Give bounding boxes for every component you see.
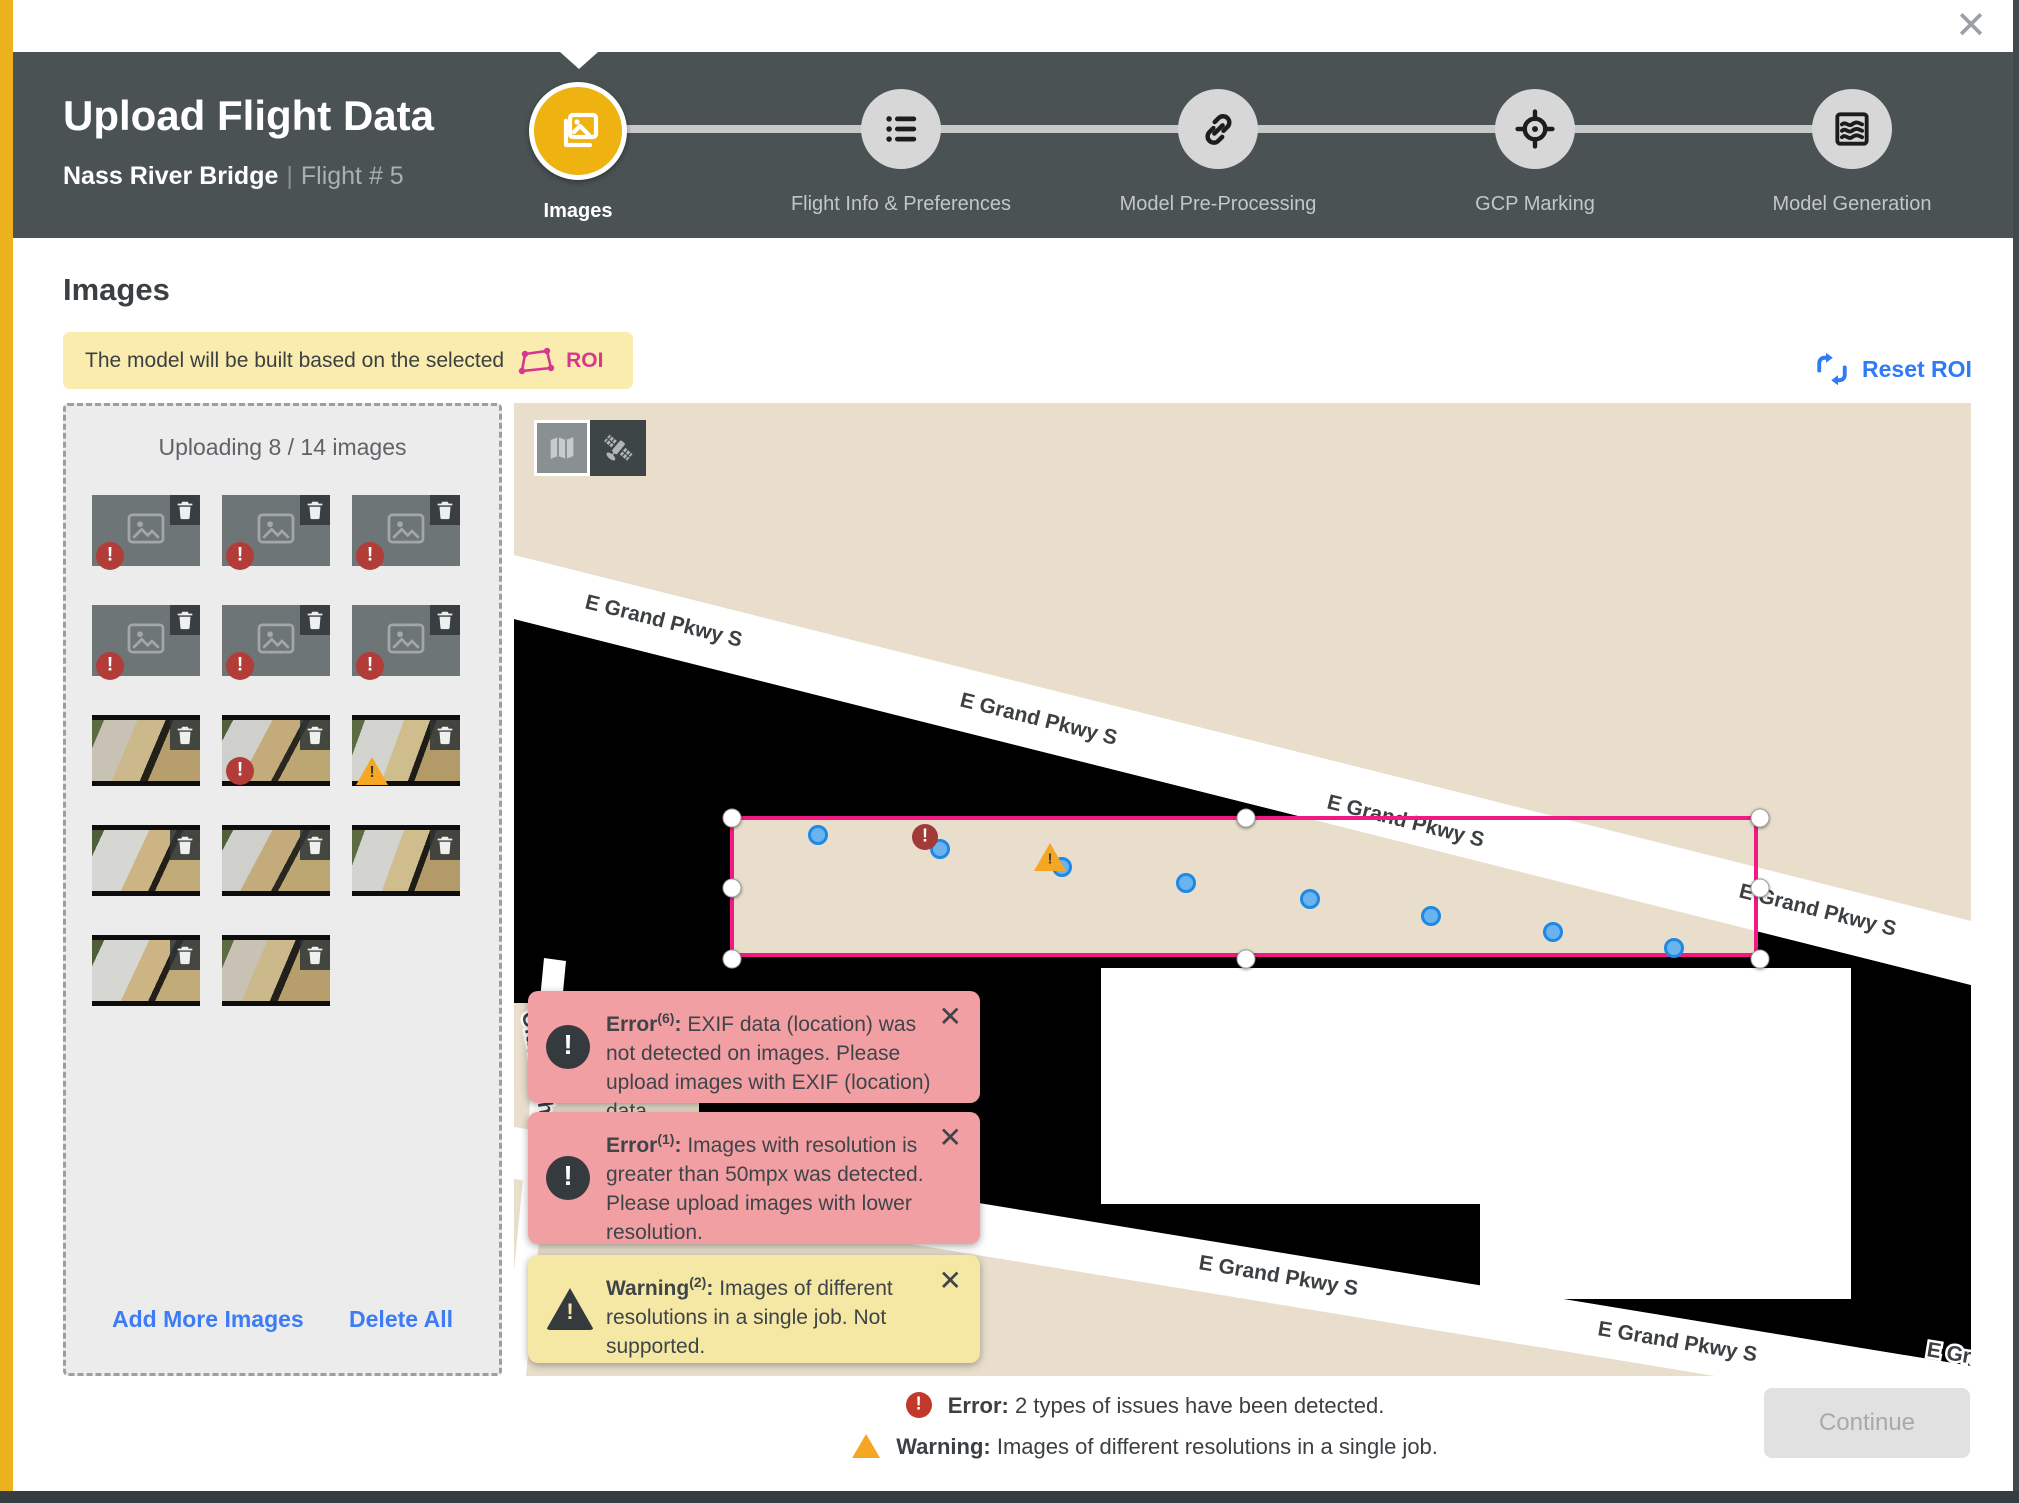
map-error-badge[interactable] bbox=[912, 824, 938, 850]
roi-resize-handle[interactable] bbox=[1237, 950, 1256, 969]
roi-resize-handle[interactable] bbox=[1751, 950, 1770, 969]
roi-resize-handle[interactable] bbox=[1751, 879, 1770, 898]
delete-image-button[interactable] bbox=[170, 495, 200, 525]
roi-resize-handle[interactable] bbox=[1751, 809, 1770, 828]
map-icon bbox=[546, 432, 578, 464]
step-model-generation[interactable]: Model Generation bbox=[1702, 52, 2002, 216]
trash-icon bbox=[304, 499, 326, 521]
list-icon bbox=[879, 107, 923, 151]
step-flight-info[interactable]: Flight Info & Preferences bbox=[751, 52, 1051, 216]
building-footprint bbox=[1101, 968, 1851, 1204]
close-icon[interactable]: ✕ bbox=[933, 999, 968, 1034]
toast-count: (6) bbox=[657, 1010, 674, 1026]
toast-colon: : bbox=[674, 1134, 681, 1157]
step-gcp-marking[interactable]: GCP Marking bbox=[1385, 52, 1685, 216]
image-placeholder-icon bbox=[125, 511, 167, 550]
images-section-heading: Images bbox=[63, 272, 170, 308]
map-view-toggle bbox=[534, 420, 646, 476]
footer-error-summary: Error: 2 types of issues have been detec… bbox=[640, 1392, 1650, 1419]
images-icon bbox=[554, 107, 602, 155]
step-label: Flight Info & Preferences bbox=[751, 193, 1051, 216]
roi-banner-label: ROI bbox=[566, 349, 603, 373]
image-thumbnail[interactable] bbox=[92, 935, 200, 1006]
thumb-error-badge bbox=[226, 757, 254, 785]
image-thumbnail[interactable] bbox=[222, 495, 330, 566]
images-step-circle[interactable] bbox=[529, 82, 627, 180]
reset-roi-label: Reset ROI bbox=[1862, 356, 1972, 383]
delete-image-button[interactable] bbox=[300, 495, 330, 525]
close-icon[interactable]: ✕ bbox=[1949, 6, 1993, 46]
continue-button[interactable]: Continue bbox=[1764, 1388, 1970, 1458]
delete-image-button[interactable] bbox=[170, 830, 200, 860]
thumbnail-grid bbox=[92, 495, 499, 1006]
trash-icon bbox=[174, 944, 196, 966]
roi-rectangle[interactable] bbox=[730, 816, 1758, 957]
trash-icon bbox=[434, 609, 456, 631]
roi-resize-handle[interactable] bbox=[723, 879, 742, 898]
camera-point-marker[interactable] bbox=[1176, 873, 1196, 893]
delete-image-button[interactable] bbox=[300, 605, 330, 635]
building-footprint-wing bbox=[1480, 1201, 1851, 1299]
thumb-error-badge bbox=[96, 542, 124, 570]
delete-image-button[interactable] bbox=[430, 830, 460, 860]
trash-icon bbox=[304, 834, 326, 856]
warning-icon bbox=[546, 1288, 594, 1330]
toast-title: Error bbox=[606, 1013, 657, 1036]
image-thumbnail[interactable] bbox=[222, 715, 330, 786]
target-icon bbox=[1513, 107, 1557, 151]
model-preprocessing-step-circle[interactable] bbox=[1178, 89, 1258, 169]
trash-icon bbox=[304, 944, 326, 966]
image-thumbnail[interactable] bbox=[352, 715, 460, 786]
delete-image-button[interactable] bbox=[300, 940, 330, 970]
close-icon[interactable]: ✕ bbox=[933, 1263, 968, 1298]
toast-title: Warning bbox=[606, 1277, 689, 1300]
flight-info-step-circle[interactable] bbox=[861, 89, 941, 169]
image-thumbnail[interactable] bbox=[92, 715, 200, 786]
footer-warning-label: Warning: bbox=[896, 1434, 991, 1459]
upload-panel: Uploading 8 / 14 images bbox=[63, 403, 502, 1376]
dialog-right-edge bbox=[2013, 0, 2019, 1503]
camera-point-marker[interactable] bbox=[1664, 938, 1684, 958]
roi-info-banner: The model will be built based on the sel… bbox=[63, 332, 633, 389]
thumb-error-badge bbox=[226, 652, 254, 680]
roi-resize-handle[interactable] bbox=[1237, 809, 1256, 828]
image-thumbnail[interactable] bbox=[352, 495, 460, 566]
reset-icon bbox=[1814, 351, 1850, 387]
dialog-left-accent bbox=[0, 0, 13, 1503]
footer-warning-summary: Warning: Images of different resolutions… bbox=[640, 1434, 1650, 1460]
trash-icon bbox=[174, 724, 196, 746]
delete-image-button[interactable] bbox=[170, 720, 200, 750]
delete-image-button[interactable] bbox=[430, 495, 460, 525]
dialog-bottom-edge bbox=[0, 1491, 2019, 1503]
delete-all-button[interactable]: Delete All bbox=[349, 1306, 453, 1333]
step-images[interactable]: Images bbox=[428, 52, 728, 223]
camera-point-marker[interactable] bbox=[808, 825, 828, 845]
error-icon bbox=[546, 1025, 590, 1069]
step-label: GCP Marking bbox=[1385, 193, 1685, 216]
delete-image-button[interactable] bbox=[430, 720, 460, 750]
toast-error-resolution: ✕ Error(1): Images with resolution is gr… bbox=[528, 1112, 980, 1244]
satellite-view-button[interactable] bbox=[590, 420, 646, 476]
image-placeholder-icon bbox=[255, 621, 297, 660]
toast-count: (1) bbox=[657, 1131, 674, 1147]
delete-image-button[interactable] bbox=[170, 605, 200, 635]
step-model-preprocessing[interactable]: Model Pre-Processing bbox=[1068, 52, 1368, 216]
image-thumbnail[interactable] bbox=[92, 605, 200, 676]
camera-point-marker[interactable] bbox=[1543, 922, 1563, 942]
image-thumbnail[interactable] bbox=[222, 825, 330, 896]
link-icon bbox=[1196, 107, 1240, 151]
trash-icon bbox=[174, 499, 196, 521]
thumb-error-badge bbox=[356, 542, 384, 570]
subtitle-separator: | bbox=[278, 162, 301, 190]
toast-warning-resolutions: ✕ Warning(2): Images of different resolu… bbox=[528, 1255, 980, 1363]
image-placeholder-icon bbox=[385, 621, 427, 660]
map-view-button[interactable] bbox=[534, 420, 590, 476]
image-placeholder-icon bbox=[255, 511, 297, 550]
thumb-warning-badge bbox=[356, 757, 388, 785]
thumb-error-badge bbox=[96, 652, 124, 680]
trash-icon bbox=[304, 724, 326, 746]
add-more-images-button[interactable]: Add More Images bbox=[112, 1306, 304, 1333]
trash-icon bbox=[434, 834, 456, 856]
toast-colon: : bbox=[706, 1277, 713, 1300]
trash-icon bbox=[434, 499, 456, 521]
trash-icon bbox=[174, 609, 196, 631]
roi-polygon-icon bbox=[516, 346, 556, 376]
image-thumbnail[interactable] bbox=[92, 825, 200, 896]
image-thumbnail[interactable] bbox=[352, 825, 460, 896]
page-title: Upload Flight Data bbox=[63, 92, 434, 140]
close-icon[interactable]: ✕ bbox=[933, 1120, 968, 1155]
trash-icon bbox=[174, 834, 196, 856]
thumb-error-badge bbox=[226, 542, 254, 570]
error-icon bbox=[906, 1392, 932, 1418]
delete-image-button[interactable] bbox=[300, 830, 330, 860]
delete-image-button[interactable] bbox=[300, 720, 330, 750]
image-placeholder-icon bbox=[125, 621, 167, 660]
toast-title: Error bbox=[606, 1134, 657, 1157]
step-label: Images bbox=[428, 200, 728, 223]
upload-progress-text: Uploading 8 / 14 images bbox=[66, 434, 499, 461]
error-icon bbox=[546, 1156, 590, 1200]
step-label: Model Generation bbox=[1702, 193, 2002, 216]
toast-colon: : bbox=[674, 1013, 681, 1036]
footer-error-text: 2 types of issues have been detected. bbox=[1015, 1393, 1384, 1418]
upload-flight-data-dialog: ✕ Upload Flight Data Nass River Bridge|F… bbox=[0, 0, 2019, 1503]
gcp-marking-step-circle[interactable] bbox=[1495, 89, 1575, 169]
warning-icon bbox=[852, 1434, 880, 1458]
thumb-error-badge bbox=[356, 652, 384, 680]
reset-roi-button[interactable]: Reset ROI bbox=[1808, 350, 1978, 388]
footer-warning-text: Images of different resolutions in a sin… bbox=[997, 1434, 1438, 1459]
image-thumbnail[interactable] bbox=[222, 605, 330, 676]
roi-resize-handle[interactable] bbox=[723, 950, 742, 969]
image-placeholder-icon bbox=[385, 511, 427, 550]
trash-icon bbox=[304, 609, 326, 631]
model-generation-step-circle[interactable] bbox=[1812, 89, 1892, 169]
delete-image-button[interactable] bbox=[430, 605, 460, 635]
camera-point-marker[interactable] bbox=[1421, 906, 1441, 926]
flight-number: Flight # 5 bbox=[301, 162, 404, 190]
trash-icon bbox=[434, 724, 456, 746]
delete-image-button[interactable] bbox=[170, 940, 200, 970]
project-name: Nass River Bridge bbox=[63, 162, 278, 190]
footer-error-label: Error: bbox=[948, 1393, 1009, 1418]
image-thumbnail[interactable] bbox=[352, 605, 460, 676]
satellite-icon bbox=[599, 429, 637, 467]
image-thumbnail[interactable] bbox=[92, 495, 200, 566]
toast-count: (2) bbox=[689, 1274, 706, 1290]
camera-point-marker[interactable] bbox=[1300, 889, 1320, 909]
layers-chart-icon bbox=[1830, 107, 1874, 151]
step-label: Model Pre-Processing bbox=[1068, 193, 1368, 216]
image-thumbnail[interactable] bbox=[222, 935, 330, 1006]
project-subtitle: Nass River Bridge|Flight # 5 bbox=[63, 162, 404, 191]
toast-error-exif: ✕ Error(6): EXIF data (location) was not… bbox=[528, 991, 980, 1103]
roi-resize-handle[interactable] bbox=[723, 809, 742, 828]
dialog-header: Upload Flight Data Nass River Bridge|Fli… bbox=[13, 52, 2013, 238]
roi-banner-text: The model will be built based on the sel… bbox=[85, 349, 504, 373]
